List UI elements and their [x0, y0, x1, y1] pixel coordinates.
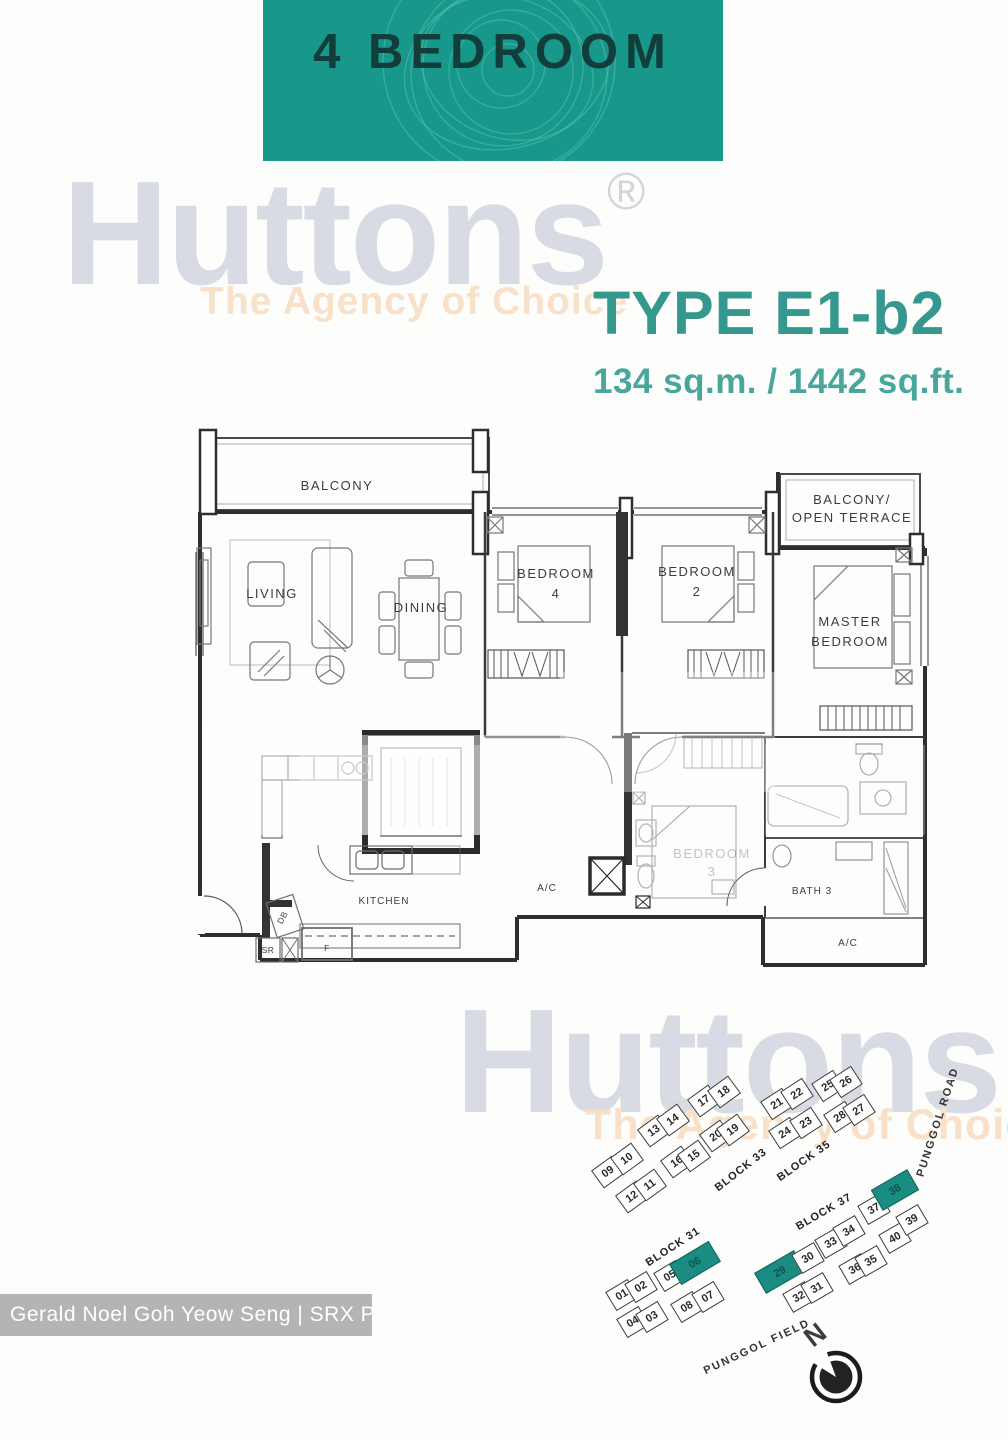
kitchen-wall — [262, 843, 270, 938]
agent-watermark-banner: Gerald Noel Goh Yeow Seng | SRX PROPERTY — [0, 1294, 372, 1336]
label-fridge: F — [324, 943, 330, 953]
label-bedroom4-num: 4 — [552, 586, 561, 601]
floor-plan: BALCONY LIVING DINING BEDROOM 4 BEDROOM … — [0, 0, 1008, 1440]
label-bedroom3: BEDROOM — [673, 846, 751, 861]
living-furniture — [197, 540, 352, 684]
agent-watermark-text: Gerald Noel Goh Yeow Seng | SRX PROPERTY — [10, 1303, 480, 1327]
label-db: DB — [275, 910, 290, 926]
balcony-structure — [206, 438, 489, 510]
bedroom2-furniture — [662, 517, 765, 678]
label-master-1: MASTER — [818, 614, 881, 629]
bath3-fixtures — [727, 842, 908, 914]
compass: N — [798, 1317, 860, 1401]
label-living: LIVING — [246, 586, 298, 601]
label-dining: DINING — [394, 600, 449, 615]
compass-north-label: N — [798, 1317, 832, 1353]
bedroom4-furniture — [487, 517, 590, 678]
label-bedroom2-num: 2 — [693, 584, 702, 599]
label-sr: SR — [262, 945, 275, 955]
label-terrace-1: BALCONY/ — [813, 492, 891, 507]
label-bedroom2: BEDROOM — [658, 564, 736, 579]
label-bedroom3-num: 3 — [708, 864, 717, 879]
label-kitchen: KITCHEN — [359, 896, 410, 907]
label-ac-mid: A/C — [537, 883, 557, 894]
bedroom-divider-wall — [616, 512, 628, 636]
label-terrace-2: OPEN TERRACE — [792, 510, 912, 525]
label-master-2: BEDROOM — [811, 634, 889, 649]
label-bedroom4: BEDROOM — [517, 566, 595, 581]
dining-furniture — [379, 560, 461, 678]
wash-overlay — [205, 672, 925, 835]
label-bath3: BATH 3 — [792, 886, 832, 897]
label-balcony: BALCONY — [301, 478, 374, 493]
label-ac-right: A/C — [838, 938, 858, 949]
page: Huttons® The Agency of Choice Huttons Th… — [0, 0, 1008, 1440]
